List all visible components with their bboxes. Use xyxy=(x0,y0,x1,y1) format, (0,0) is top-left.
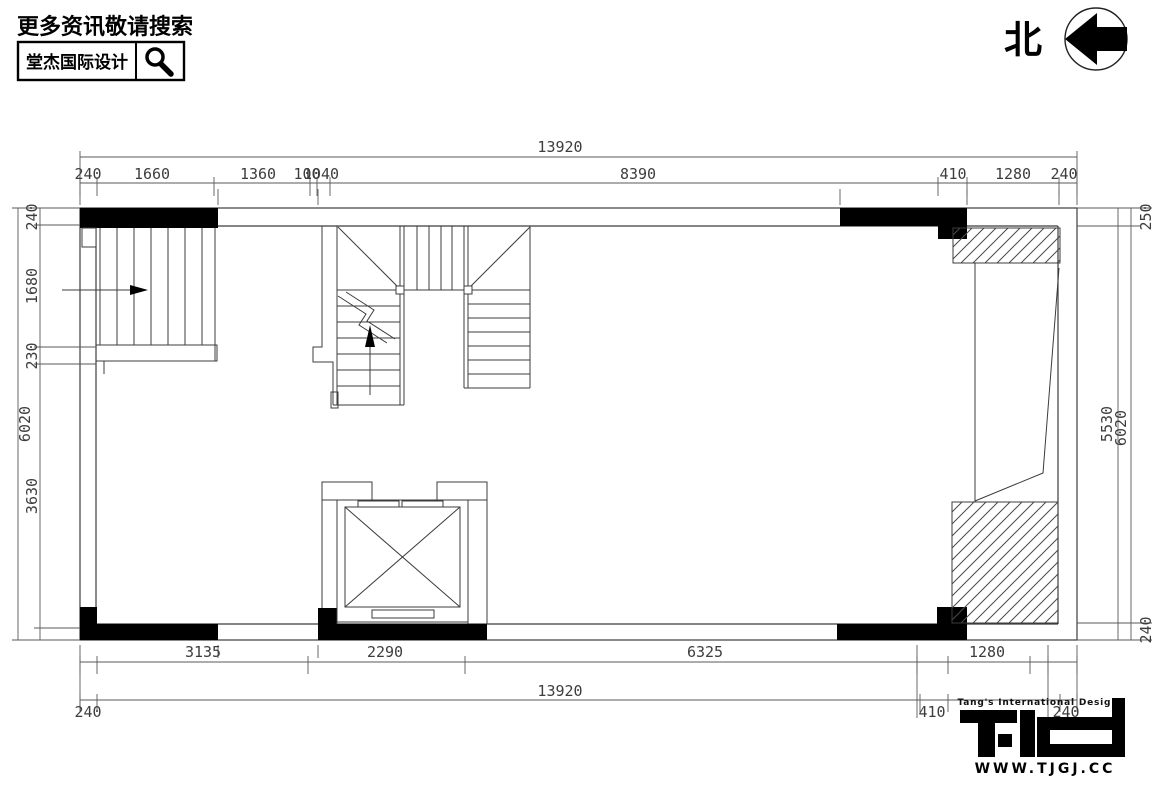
dim-top-s2: 1660 xyxy=(134,165,170,183)
stairs-up-arrow xyxy=(365,325,375,395)
header-tagline: 更多资讯敬请搜索 xyxy=(17,14,193,40)
dim-bottom-total: 13920 xyxy=(537,682,582,700)
right-void-zone xyxy=(952,228,1060,623)
wall-fill-top-left xyxy=(80,208,218,228)
dim-bottom-e1: 240 xyxy=(74,703,101,721)
wall-fill-elevator-bottom xyxy=(318,624,487,640)
dims-right-labels: 5530 6020 250 240 xyxy=(1098,203,1155,643)
stairs-central xyxy=(313,226,530,408)
elevator-door xyxy=(358,501,399,507)
dim-right-s1: 250 xyxy=(1137,203,1155,230)
wall-solid-fills xyxy=(80,208,967,640)
dim-right-s3: 240 xyxy=(1137,616,1155,643)
dim-top-s6: 8390 xyxy=(620,165,656,183)
stairs-direction-arrow xyxy=(62,285,148,295)
dim-top-s7: 410 xyxy=(939,165,966,183)
dim-bottom-s4: 1280 xyxy=(969,643,1005,661)
dims-left-labels: 6020 240 1680 230 3630 xyxy=(16,203,41,514)
floor-plan-page: 更多资讯敬请搜索 堂杰国际设计 北 xyxy=(0,0,1158,800)
dim-left-total: 6020 xyxy=(16,406,34,442)
dim-left-s3: 230 xyxy=(23,342,41,369)
search-icon xyxy=(147,49,171,74)
plan-walls xyxy=(80,208,1077,640)
footer-logo: Tang's International Design WWW.TJGJ.CC xyxy=(958,698,1125,777)
footer-website: WWW.TJGJ.CC xyxy=(975,761,1116,777)
wall-fill-top-right xyxy=(840,208,967,226)
hatch-area-top xyxy=(953,228,1060,263)
dim-bottom-s2: 2290 xyxy=(367,643,403,661)
dims-top-labels: 13920 240 1660 1360 100 1040 8390 410 12… xyxy=(74,138,1077,183)
dim-left-s4: 3630 xyxy=(23,478,41,514)
header: 更多资讯敬请搜索 堂杰国际设计 xyxy=(17,14,193,80)
brand-label: 堂杰国际设计 xyxy=(26,52,128,73)
dims-top-lines xyxy=(80,151,1077,205)
elevator xyxy=(322,482,487,624)
dim-left-s2: 1680 xyxy=(23,268,41,304)
wall-fill-bottom-left-column xyxy=(80,607,97,640)
compass: 北 xyxy=(1004,8,1127,70)
dim-top-s1: 240 xyxy=(74,165,101,183)
dim-top-s5: 1040 xyxy=(303,165,339,183)
floor-plan-canvas: 更多资讯敬请搜索 堂杰国际设计 北 xyxy=(0,0,1158,800)
wall-fill-bottom-left xyxy=(96,624,218,640)
elevator-door xyxy=(402,501,443,507)
dim-top-total: 13920 xyxy=(537,138,582,156)
dim-top-s8: 1280 xyxy=(995,165,1031,183)
north-arrow-icon xyxy=(1065,8,1127,70)
dim-bottom-s3: 6325 xyxy=(687,643,723,661)
footer-tagline: Tang's International Design xyxy=(958,698,1119,708)
dim-right-total: 6020 xyxy=(1112,410,1130,446)
stairs-top-left xyxy=(62,228,217,374)
dim-top-s3: 1360 xyxy=(240,165,276,183)
dim-bottom-e2: 410 xyxy=(918,703,945,721)
dim-top-s9: 240 xyxy=(1050,165,1077,183)
dim-left-s1: 240 xyxy=(23,203,41,230)
north-label: 北 xyxy=(1004,17,1042,62)
dims-bottom-labels: 3135 2290 6325 1280 13920 240 410 240 xyxy=(74,643,1079,721)
wall-fill-bottom-right xyxy=(837,624,967,640)
hatch-area-bottom xyxy=(952,502,1058,623)
void-slant-line xyxy=(975,268,1059,501)
dim-bottom-s1: 3135 xyxy=(185,643,221,661)
